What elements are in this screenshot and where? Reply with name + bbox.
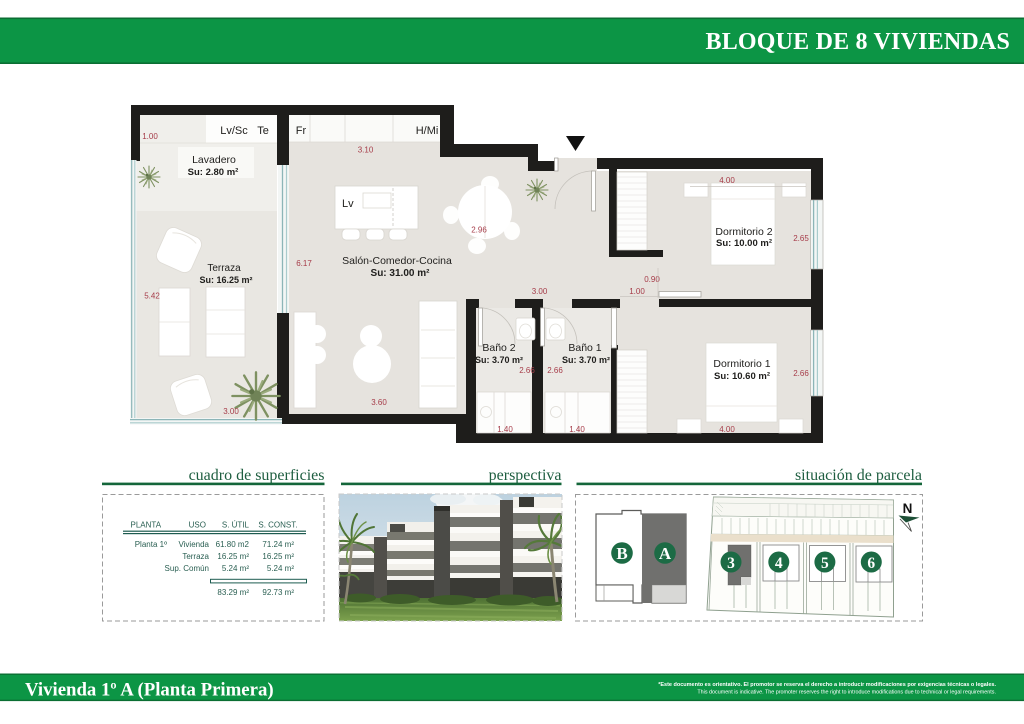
svg-text:6.17: 6.17 xyxy=(296,259,312,268)
svg-text:4.00: 4.00 xyxy=(719,425,735,434)
svg-text:1.00: 1.00 xyxy=(629,287,645,296)
svg-text:5.42: 5.42 xyxy=(144,292,160,301)
svg-text:Vivienda: Vivienda xyxy=(178,540,209,549)
svg-text:Su: 31.00 m²: Su: 31.00 m² xyxy=(371,268,431,279)
svg-text:61.80 m2: 61.80 m2 xyxy=(216,540,250,549)
svg-text:This document is indicative. T: This document is indicative. The promote… xyxy=(697,690,996,696)
svg-text:3.00: 3.00 xyxy=(223,407,239,416)
svg-text:Lv/Sc: Lv/Sc xyxy=(220,125,248,137)
svg-text:3: 3 xyxy=(727,555,735,572)
svg-text:5: 5 xyxy=(821,555,829,572)
svg-text:Su: 10.00 m²: Su: 10.00 m² xyxy=(716,238,772,249)
svg-text:6: 6 xyxy=(867,555,875,572)
svg-text:PLANTA: PLANTA xyxy=(131,521,162,530)
svg-text:Su: 2.80 m²: Su: 2.80 m² xyxy=(188,167,239,178)
svg-text:16.25 m²: 16.25 m² xyxy=(217,552,249,561)
svg-text:Planta 1º: Planta 1º xyxy=(135,540,167,549)
svg-text:4: 4 xyxy=(775,555,783,572)
svg-text:cuadro de superficies: cuadro de superficies xyxy=(189,467,325,484)
svg-text:71.24 m²: 71.24 m² xyxy=(262,540,294,549)
svg-text:2.66: 2.66 xyxy=(793,369,809,378)
svg-text:H/Mi: H/Mi xyxy=(416,125,439,137)
svg-text:92.73 m²: 92.73 m² xyxy=(262,588,294,597)
svg-text:Baño 2: Baño 2 xyxy=(482,342,515,354)
svg-text:Terraza: Terraza xyxy=(207,263,241,274)
svg-text:A: A xyxy=(659,544,672,563)
svg-text:2.66: 2.66 xyxy=(547,366,563,375)
svg-text:1.40: 1.40 xyxy=(497,425,513,434)
svg-text:Dormitorio 1: Dormitorio 1 xyxy=(713,358,770,370)
svg-text:3.00: 3.00 xyxy=(532,287,548,296)
svg-text:*Este documento es orientativo: *Este documento es orientativo. El promo… xyxy=(658,682,996,688)
svg-text:5.24 m²: 5.24 m² xyxy=(222,564,249,573)
svg-text:Lv: Lv xyxy=(342,198,354,210)
svg-text:S. ÚTIL: S. ÚTIL xyxy=(222,521,250,530)
svg-text:Lavadero: Lavadero xyxy=(192,154,236,166)
svg-text:1.00: 1.00 xyxy=(142,132,158,141)
svg-text:perspectiva: perspectiva xyxy=(489,467,562,484)
svg-text:2.66: 2.66 xyxy=(519,366,535,375)
svg-text:Terraza: Terraza xyxy=(182,552,209,561)
svg-text:N: N xyxy=(903,501,913,516)
svg-text:Su: 16.25 m²: Su: 16.25 m² xyxy=(199,275,252,285)
svg-text:2.96: 2.96 xyxy=(471,226,487,235)
svg-text:Sup. Común: Sup. Común xyxy=(165,564,209,573)
svg-text:3.60: 3.60 xyxy=(371,398,387,407)
svg-text:S. CONST.: S. CONST. xyxy=(258,521,297,530)
svg-text:Fr: Fr xyxy=(296,125,307,137)
svg-text:5.24 m²: 5.24 m² xyxy=(267,564,294,573)
svg-text:Baño 1: Baño 1 xyxy=(568,342,601,354)
svg-text:Su: 3.70 m²: Su: 3.70 m² xyxy=(475,355,523,365)
svg-text:Su: 3.70 m²: Su: 3.70 m² xyxy=(562,355,610,365)
svg-text:1.40: 1.40 xyxy=(569,425,585,434)
svg-text:Su: 10.60 m²: Su: 10.60 m² xyxy=(714,371,770,382)
svg-text:Te: Te xyxy=(257,125,269,137)
svg-text:Dormitorio 2: Dormitorio 2 xyxy=(715,226,772,238)
svg-text:4.00: 4.00 xyxy=(719,176,735,185)
svg-text:3.10: 3.10 xyxy=(358,146,374,155)
svg-text:16.25 m²: 16.25 m² xyxy=(262,552,294,561)
svg-text:BLOQUE DE 8 VIVIENDAS: BLOQUE DE 8 VIVIENDAS xyxy=(706,29,1011,55)
svg-text:2.65: 2.65 xyxy=(793,234,809,243)
svg-text:situación de parcela: situación de parcela xyxy=(795,467,922,484)
svg-text:83.29 m²: 83.29 m² xyxy=(217,588,249,597)
svg-text:Salón-Comedor-Cocina: Salón-Comedor-Cocina xyxy=(342,255,452,267)
svg-text:Vivienda 1º A (Planta Primera): Vivienda 1º A (Planta Primera) xyxy=(25,680,274,701)
svg-text:USO: USO xyxy=(189,521,206,530)
svg-text:B: B xyxy=(616,544,627,563)
